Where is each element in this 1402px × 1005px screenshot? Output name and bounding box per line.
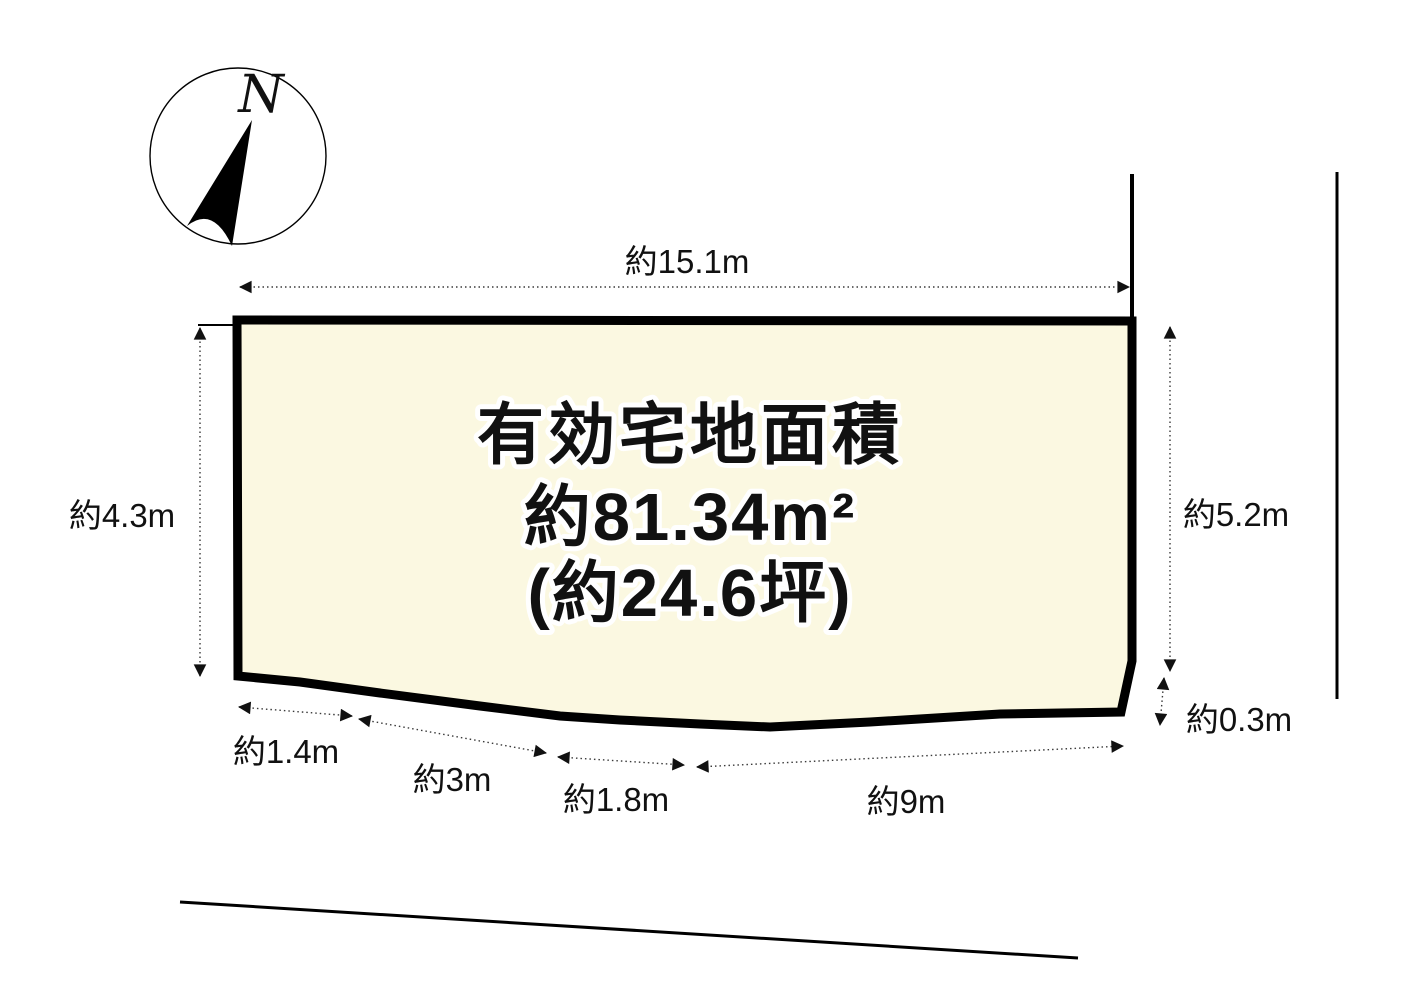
dim-label-bottom-2: 約3m	[413, 761, 492, 798]
dim-label-right-offset: 約0.3m	[1186, 701, 1292, 738]
dim-label-left: 約4.3m	[69, 497, 175, 534]
dim-label-bottom-1: 約1.4m	[233, 733, 339, 770]
area-tsubo: (約24.6坪)	[527, 556, 852, 631]
area-title: 有効宅地面積	[477, 398, 903, 473]
site-plan-svg: N 有効宅地面積 約81.34m² (約24.6坪) 約15.1m 約4.3m …	[0, 0, 1402, 1005]
dim-label-bottom-4: 約9m	[867, 783, 946, 820]
area-value: 約81.34m²	[524, 480, 857, 555]
dimension-line-bottom-2	[359, 719, 546, 753]
compass: N	[150, 65, 326, 246]
dim-label-right: 約5.2m	[1183, 496, 1289, 533]
site-plan-canvas: N 有効宅地面積 約81.34m² (約24.6坪) 約15.1m 約4.3m …	[0, 0, 1402, 1005]
road-boundary-line	[180, 902, 1078, 958]
parcel-area-text: 有効宅地面積 約81.34m² (約24.6坪)	[477, 398, 903, 631]
dimension-line-bottom-1	[239, 707, 352, 716]
dimension-line-bottom-4	[697, 746, 1123, 767]
dimension-line-right-offset	[1160, 678, 1164, 725]
dimension-line-bottom-3	[558, 757, 684, 765]
north-needle-icon	[187, 120, 252, 246]
dim-label-top: 約15.1m	[625, 243, 750, 280]
north-label: N	[236, 65, 285, 125]
dim-label-bottom-3: 約1.8m	[563, 781, 669, 818]
